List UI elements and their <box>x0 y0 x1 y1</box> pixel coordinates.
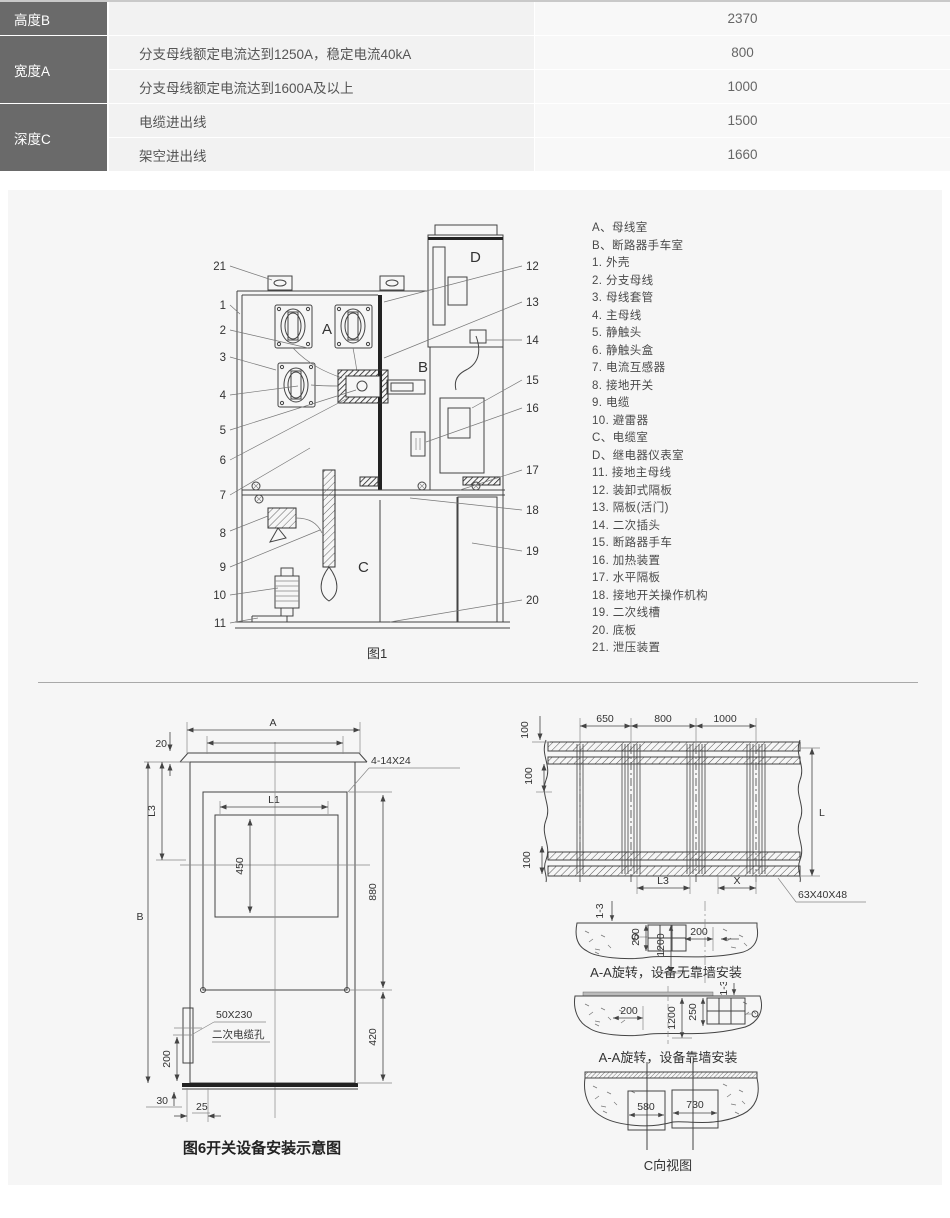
svg-text:450: 450 <box>234 857 246 875</box>
svg-text:200: 200 <box>620 1005 638 1017</box>
svg-text:20: 20 <box>526 595 539 607</box>
svg-text:800: 800 <box>654 713 672 725</box>
s3-caption: C向视图 <box>644 1158 692 1173</box>
row-desc: 架空进出线 <box>109 138 535 172</box>
legend-item: D、继电器仪表室 <box>592 448 932 466</box>
row-header-depth: 深度C <box>0 104 109 172</box>
svg-text:7: 7 <box>220 490 226 502</box>
svg-text:12: 12 <box>526 261 539 273</box>
svg-text:19: 19 <box>526 546 539 558</box>
row-desc: 分支母线额定电流达到1600A及以上 <box>109 70 535 104</box>
relay-compartment <box>428 225 503 347</box>
section-aa-freestanding: 1-3 250 1200 200 A-A旋转，设备无靠墙安装 <box>555 895 875 995</box>
s1-caption: A-A旋转，设备无靠墙安装 <box>590 965 742 980</box>
horizontal-partition <box>242 477 505 495</box>
dimension-spec-table: 高度B 2370 宽度A 分支母线额定电流达到1250A，稳定电流40kA 80… <box>0 2 950 172</box>
svg-text:1-3: 1-3 <box>594 903 606 918</box>
legend-item: 13. 隔板(活门) <box>592 500 932 518</box>
room-label-a: A <box>322 321 332 338</box>
legend-item: 12. 装卸式隔板 <box>592 483 932 501</box>
svg-text:L: L <box>819 807 825 819</box>
parts-legend: A、母线室 B、断路器手车室 1. 外壳 2. 分支母线 3. 母线套管 4. … <box>592 220 932 658</box>
svg-text:200: 200 <box>690 926 708 938</box>
svg-text:730: 730 <box>686 1099 704 1111</box>
svg-text:16: 16 <box>526 403 539 415</box>
row-value: 1000 <box>535 70 950 104</box>
svg-text:B: B <box>136 911 143 923</box>
legend-item: 1. 外壳 <box>592 255 932 273</box>
svg-text:250: 250 <box>687 1003 699 1021</box>
legend-item: 9. 电缆 <box>592 395 932 413</box>
legend-item: 7. 电流互感器 <box>592 360 932 378</box>
s1-dimensions: 1-3 250 1200 200 <box>594 901 739 973</box>
svg-text:L3: L3 <box>657 875 669 887</box>
view-c-direction: 580 730 C向视图 <box>555 1058 875 1188</box>
svg-text:650: 650 <box>596 713 614 725</box>
fig6-dimensions: A L1 450 L3 B 20 4-14X24 880 420 200 50X… <box>136 717 460 1122</box>
row-header-width: 宽度A <box>0 36 109 104</box>
row-value: 2370 <box>535 2 950 36</box>
svg-text:14: 14 <box>526 335 539 347</box>
svg-text:二次电缆孔: 二次电缆孔 <box>212 1028 265 1041</box>
svg-text:200: 200 <box>161 1050 173 1068</box>
row-value: 800 <box>535 36 950 70</box>
legend-item: C、电缆室 <box>592 430 932 448</box>
svg-text:100: 100 <box>523 767 535 785</box>
svg-text:1200: 1200 <box>655 933 667 957</box>
floor-strip <box>585 1072 757 1078</box>
svg-text:8: 8 <box>220 528 226 540</box>
table-row: 架空进出线 1660 <box>0 138 950 172</box>
svg-text:420: 420 <box>367 1028 379 1046</box>
svg-text:21: 21 <box>213 261 226 273</box>
svg-text:50X230: 50X230 <box>216 1009 252 1021</box>
legend-item: 18. 接地开关操作机构 <box>592 588 932 606</box>
svg-text:880: 880 <box>367 883 379 901</box>
svg-text:1-3: 1-3 <box>718 982 730 996</box>
svg-text:20: 20 <box>155 738 167 750</box>
row-desc: 分支母线额定电流达到1250A，稳定电流40kA <box>109 36 535 70</box>
foundation-plan-view: 650 800 1000 100 100 100 L L3 X 63X40X48 <box>510 700 950 910</box>
callouts-right: 12 13 14 15 16 17 18 19 20 <box>384 261 539 622</box>
room-label-b: B <box>418 359 428 376</box>
svg-text:250: 250 <box>630 928 642 946</box>
s2-dimensions: 200 1200 250 1-3 <box>613 982 734 1038</box>
row-value: 1660 <box>535 138 950 172</box>
legend-item: 3. 母线套管 <box>592 290 932 308</box>
svg-text:5: 5 <box>220 425 226 437</box>
figures-panel: A B C D 21 1 2 3 4 5 6 7 8 9 10 11 12 13… <box>8 190 942 1185</box>
room-label-d: D <box>470 249 481 266</box>
wall-plate <box>583 992 713 996</box>
legend-item: 19. 二次线槽 <box>592 605 932 623</box>
svg-text:2: 2 <box>220 325 226 337</box>
svg-text:3: 3 <box>220 352 226 364</box>
concrete-slab <box>585 1078 759 1126</box>
table-row: 高度B 2370 <box>0 2 950 36</box>
svg-text:L1: L1 <box>268 794 280 806</box>
legend-item: 17. 水平隔板 <box>592 570 932 588</box>
row-desc <box>109 2 535 36</box>
figure1-switchgear-section: A B C D 21 1 2 3 4 5 6 7 8 9 10 11 12 13… <box>160 218 570 668</box>
svg-text:100: 100 <box>521 851 533 869</box>
row-header-height: 高度B <box>0 2 109 36</box>
embedded-channel <box>707 998 758 1024</box>
table-row: 宽度A 分支母线额定电流达到1250A，稳定电流40kA 800 <box>0 36 950 70</box>
svg-text:18: 18 <box>526 505 539 517</box>
svg-text:25: 25 <box>196 1101 208 1113</box>
legend-item: B、断路器手车室 <box>592 238 932 256</box>
svg-text:11: 11 <box>214 618 226 630</box>
svg-text:10: 10 <box>213 590 226 602</box>
legend-item: 11. 接地主母线 <box>592 465 932 483</box>
svg-text:580: 580 <box>637 1101 655 1113</box>
legend-item: 4. 主母线 <box>592 308 932 326</box>
cable-room <box>252 470 497 622</box>
svg-text:17: 17 <box>526 465 539 477</box>
svg-text:30: 30 <box>156 1095 168 1107</box>
legend-item: 15. 断路器手车 <box>592 535 932 553</box>
legend-item: 20. 底板 <box>592 623 932 641</box>
svg-text:X: X <box>733 875 740 887</box>
legend-item: 21. 泄压装置 <box>592 640 932 658</box>
svg-text:13: 13 <box>526 297 539 309</box>
figure6-caption: 图6开关设备安装示意图 <box>183 1139 341 1157</box>
svg-text:15: 15 <box>526 375 539 387</box>
legend-item: 10. 避雷器 <box>592 413 932 431</box>
legend-item: 5. 静触头 <box>592 325 932 343</box>
breaker-handcart <box>411 330 486 473</box>
svg-text:4: 4 <box>220 390 227 402</box>
svg-text:1: 1 <box>220 300 226 312</box>
svg-text:4-14X24: 4-14X24 <box>371 755 411 767</box>
legend-item: A、母线室 <box>592 220 932 238</box>
s3-dimensions: 580 730 <box>629 1099 717 1115</box>
concrete-texture <box>593 1084 745 1114</box>
legend-item: 16. 加热装置 <box>592 553 932 571</box>
figure6-installation-view: A L1 450 L3 B 20 4-14X24 880 420 200 50X… <box>130 698 475 1163</box>
anchor-bolt-lines <box>577 744 765 882</box>
legend-item: 8. 接地开关 <box>592 378 932 396</box>
svg-text:9: 9 <box>220 562 226 574</box>
svg-text:100: 100 <box>519 721 531 739</box>
figure1-caption: 图1 <box>367 646 387 661</box>
legend-item: 6. 静触头盒 <box>592 343 932 361</box>
svg-text:6: 6 <box>220 455 226 467</box>
row-desc: 电缆进出线 <box>109 104 535 138</box>
legend-item: 2. 分支母线 <box>592 273 932 291</box>
svg-text:1000: 1000 <box>713 713 737 725</box>
section-divider <box>38 682 918 683</box>
busbar-connector <box>338 370 425 403</box>
table-row: 分支母线额定电流达到1600A及以上 1000 <box>0 70 950 104</box>
legend-item: 14. 二次插头 <box>592 518 932 536</box>
room-label-c: C <box>358 559 369 576</box>
table-row: 深度C 电缆进出线 1500 <box>0 104 950 138</box>
row-value: 1500 <box>535 104 950 138</box>
svg-text:A: A <box>269 717 276 729</box>
